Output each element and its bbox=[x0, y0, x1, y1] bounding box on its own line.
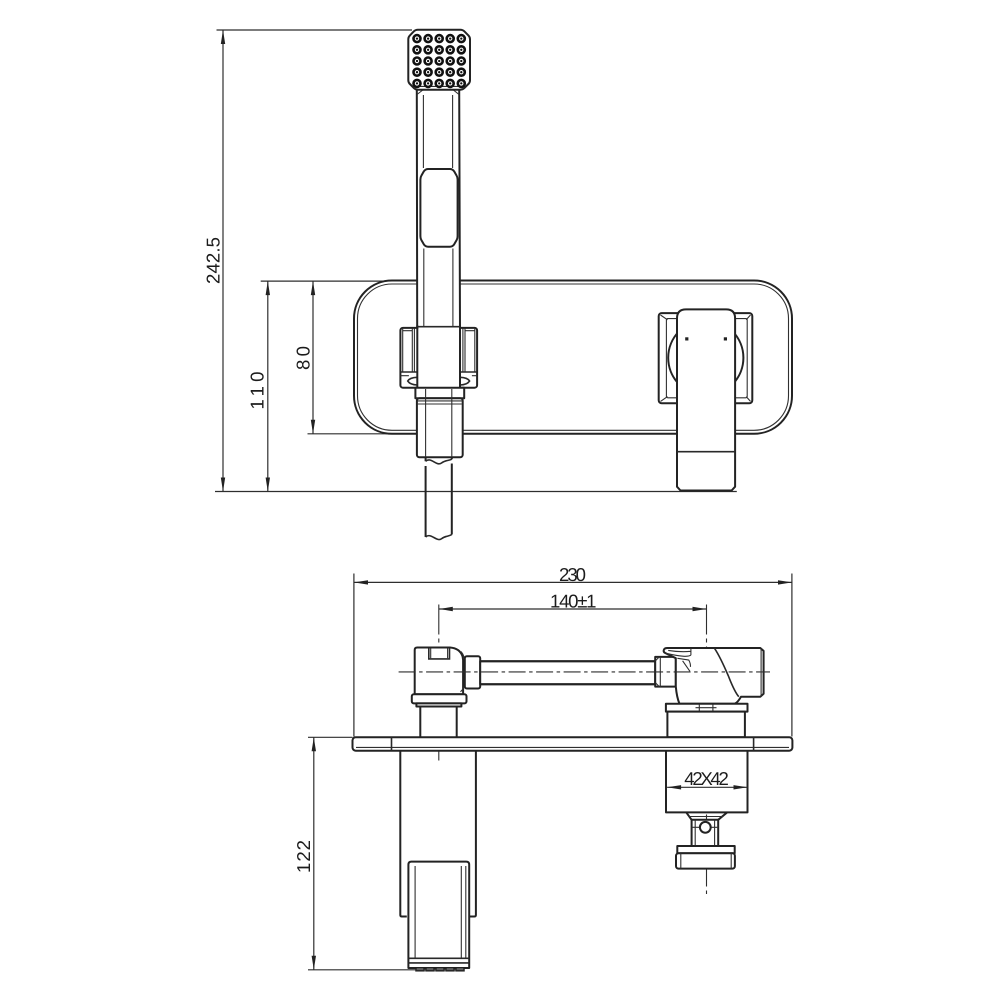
svg-text:42X42: 42X42 bbox=[684, 768, 729, 789]
svg-text:110: 110 bbox=[247, 372, 268, 410]
svg-text:242.5: 242.5 bbox=[203, 237, 224, 284]
svg-text:140±1: 140±1 bbox=[550, 591, 597, 612]
svg-text:122: 122 bbox=[293, 840, 314, 873]
svg-text:230: 230 bbox=[559, 564, 586, 585]
svg-text:80: 80 bbox=[293, 346, 314, 370]
